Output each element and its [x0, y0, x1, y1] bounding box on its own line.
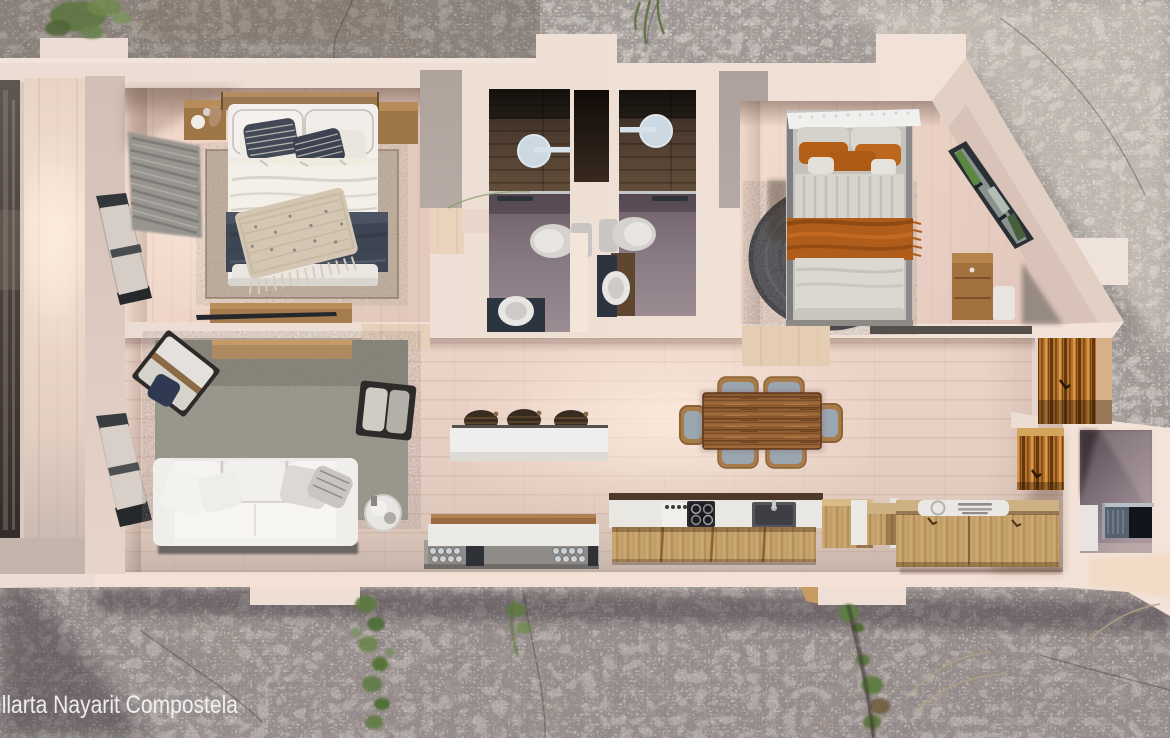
svg-text:ullarta Nayarit Compostela: ullarta Nayarit Compostela [0, 691, 238, 719]
